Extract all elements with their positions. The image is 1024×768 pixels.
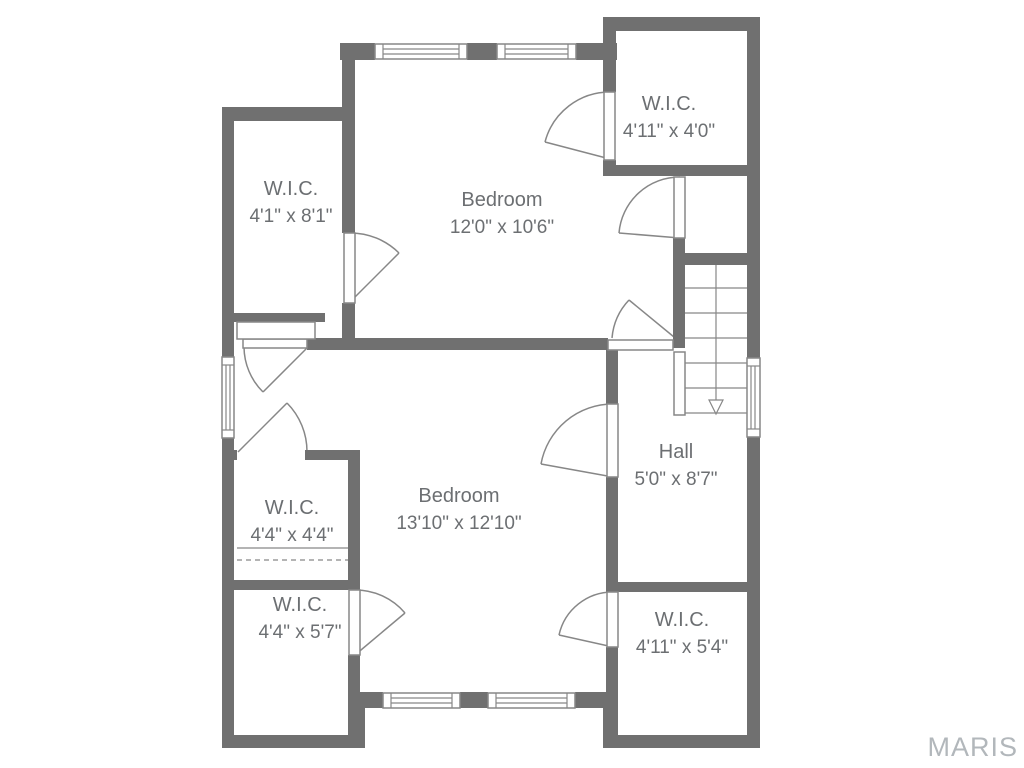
wall-segment (348, 655, 360, 692)
door-swing-icon (350, 233, 399, 253)
door-swing-icon (612, 300, 629, 338)
room-name: W.I.C. (249, 176, 332, 203)
room-dimensions: 4'11" x 4'0" (623, 118, 715, 145)
wall-segment (673, 253, 747, 265)
room-dimensions: 4'1" x 8'1" (249, 203, 332, 230)
wall-segment (467, 43, 497, 60)
room-label-bedroom-s: Bedroom 13'10" x 12'10" (396, 483, 521, 537)
room-dimensions: 4'4" x 5'7" (258, 619, 341, 646)
room-dimensions: 5'0" x 8'7" (634, 466, 717, 493)
wall-segment (613, 165, 747, 176)
stairs-icon (685, 265, 747, 414)
wall-segment (222, 450, 237, 460)
door-leaf (604, 92, 615, 160)
room-name: Hall (634, 439, 717, 466)
door-leaf-edge (559, 635, 613, 647)
wall-segment (460, 692, 488, 708)
door-leaf-edge (263, 347, 308, 392)
wall-segment (606, 647, 618, 735)
door-leaf (674, 177, 685, 238)
door-swing-icon (545, 92, 610, 142)
room-dimensions: 13'10" x 12'10" (396, 510, 521, 537)
wall-segment (222, 580, 360, 590)
door-swing-icon (619, 177, 680, 233)
wall-segment (603, 17, 760, 31)
room-label-wic-nw: W.I.C. 4'1" x 8'1" (249, 176, 332, 230)
cased-opening (608, 340, 673, 350)
wall-segment (603, 735, 760, 748)
door-leaf-edge (238, 403, 287, 452)
stair-railing (674, 352, 685, 415)
room-label-wic-w2: W.I.C. 4'4" x 5'7" (258, 592, 341, 646)
window-icon (497, 44, 576, 59)
wall-segment (307, 338, 608, 350)
room-dimensions: 12'0" x 10'6" (450, 214, 554, 241)
door-swing-icon (355, 590, 405, 613)
door-leaf-edge (355, 613, 405, 655)
wall-segment (348, 450, 360, 590)
door-leaf-edge (619, 233, 680, 238)
window-icon (375, 44, 467, 59)
wall-segment (747, 17, 760, 358)
door-leaf (607, 592, 618, 647)
room-name: W.I.C. (250, 495, 333, 522)
wall-segment (342, 43, 355, 233)
wall-segment (348, 692, 383, 708)
wall-segment (222, 313, 325, 322)
room-label-bedroom-n: Bedroom 12'0" x 10'6" (450, 187, 554, 241)
room-label-hall: Hall 5'0" x 8'7" (634, 439, 717, 493)
room-label-wic-se: W.I.C. 4'11" x 5'4" (636, 607, 728, 661)
room-dimensions: 4'11" x 5'4" (636, 634, 728, 661)
door-leaf (607, 404, 618, 477)
wall-segment (606, 350, 618, 404)
window-icon (222, 357, 234, 438)
room-dimensions: 4'4" x 4'4" (250, 522, 333, 549)
wall-segment (606, 582, 748, 592)
wall-segment (606, 477, 618, 583)
door-leaf (344, 233, 355, 303)
room-name: W.I.C. (623, 91, 715, 118)
closet-shelf (237, 322, 315, 339)
wall-segment (340, 43, 375, 60)
floorplan-drawing (0, 0, 1024, 768)
wall-segment (603, 31, 616, 92)
window-icon (383, 693, 460, 708)
wall-segment (747, 437, 760, 748)
room-label-wic-ne: W.I.C. 4'11" x 4'0" (623, 91, 715, 145)
door-leaf-edge (541, 464, 613, 477)
door-swing-icon (559, 592, 613, 635)
room-name: W.I.C. (636, 607, 728, 634)
stairs-down-arrow-icon (709, 400, 723, 414)
wall-segment (222, 735, 365, 748)
room-name: Bedroom (396, 483, 521, 510)
door-swing-icon (541, 404, 613, 464)
door-leaf-edge (350, 253, 399, 302)
window-icon (747, 358, 760, 437)
room-label-wic-w1: W.I.C. 4'4" x 4'4" (250, 495, 333, 549)
door-leaf-edge (545, 142, 610, 159)
door-leaf (349, 590, 360, 655)
window-icon (488, 693, 575, 708)
door-leaf (243, 339, 307, 348)
wall-segment (222, 107, 353, 121)
room-name: W.I.C. (258, 592, 341, 619)
watermark: MARIS (927, 732, 1018, 763)
door-swing-icon (244, 347, 263, 392)
door-swing-icon (287, 403, 307, 452)
room-name: Bedroom (450, 187, 554, 214)
door-leaf-edge (629, 300, 674, 337)
wall-segment (222, 438, 234, 748)
